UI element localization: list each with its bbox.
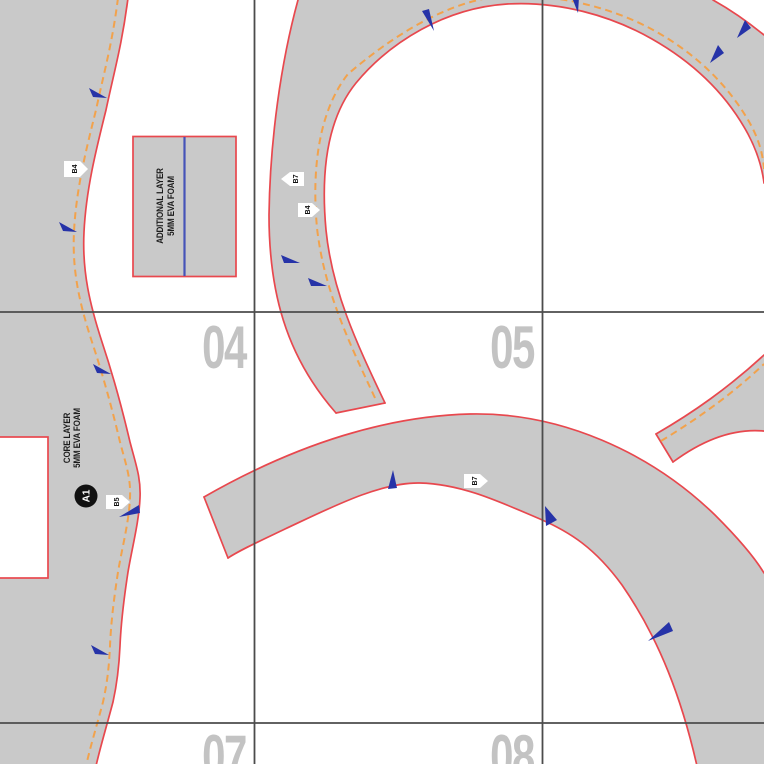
tag-label: B7: [293, 174, 300, 183]
tag-label: B4: [305, 205, 312, 214]
tile-number-07: 07: [202, 723, 246, 764]
pattern-page: 04 05 07 08 ADDITIONAL LAYER 5MM EVA FOA…: [0, 0, 764, 764]
tag-label: B5: [114, 497, 121, 506]
connector-badge-label: A1: [82, 489, 93, 502]
pattern-canvas: 04 05 07 08 ADDITIONAL LAYER 5MM EVA FOA…: [0, 0, 764, 764]
tag-label: B4: [72, 164, 79, 173]
connector-badge: A1: [75, 485, 98, 508]
cutout-window: [0, 437, 48, 578]
tile-number-04: 04: [202, 314, 247, 381]
core-layer-label-line2: 5MM EVA FOAM: [71, 408, 82, 468]
tile-number-08: 08: [490, 723, 535, 764]
additional-layer-label-line1: ADDITIONAL LAYER: [154, 167, 165, 243]
additional-layer-label-line2: 5MM EVA FOAM: [165, 176, 176, 236]
band-piece-fill: [204, 414, 764, 764]
tag-label: B7: [472, 476, 479, 485]
ring-seam-dash: [315, 0, 764, 398]
tile-number-05: 05: [490, 314, 535, 381]
